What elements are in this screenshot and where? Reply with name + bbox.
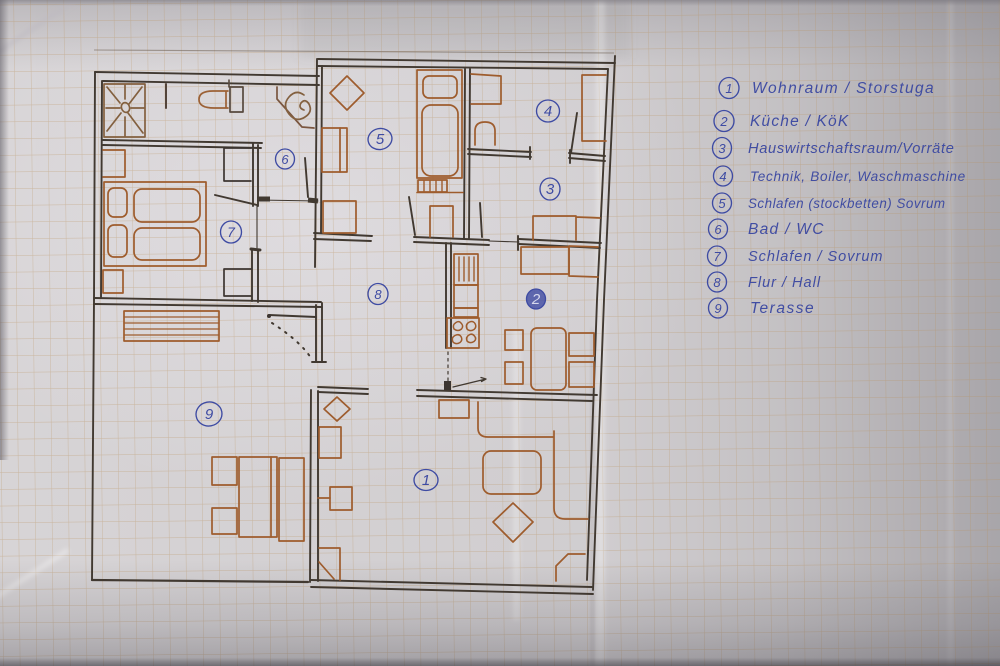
svg-text:Hauswirtschaftsraum/Vorräte: Hauswirtschaftsraum/Vorräte — [748, 141, 955, 157]
svg-text:7: 7 — [713, 249, 721, 264]
svg-text:8: 8 — [374, 287, 382, 302]
svg-text:Küche / KöK: Küche / KöK — [750, 113, 849, 130]
svg-text:4: 4 — [719, 169, 726, 184]
svg-text:Bad / WC: Bad / WC — [748, 221, 825, 238]
svg-text:2: 2 — [531, 291, 541, 308]
svg-text:Technik, Boiler, Waschmaschine: Technik, Boiler, Waschmaschine — [750, 169, 966, 184]
svg-text:Flur / Hall: Flur / Hall — [748, 275, 821, 291]
svg-text:4: 4 — [544, 103, 552, 120]
svg-text:5: 5 — [376, 131, 385, 148]
svg-text:Terasse: Terasse — [750, 300, 815, 317]
svg-text:Wohnraum / Storstuga: Wohnraum / Storstuga — [752, 80, 935, 97]
svg-text:7: 7 — [227, 224, 236, 240]
svg-text:8: 8 — [713, 275, 721, 290]
svg-text:3: 3 — [546, 181, 555, 198]
svg-text:5: 5 — [718, 196, 726, 211]
svg-text:9: 9 — [714, 301, 721, 316]
svg-text:6: 6 — [281, 152, 289, 167]
svg-text:Schlafen (stockbetten) Sovrum: Schlafen (stockbetten) Sovrum — [748, 196, 946, 211]
svg-text:Schlafen / Sovrum: Schlafen / Sovrum — [748, 249, 883, 265]
svg-text:2: 2 — [719, 114, 728, 129]
svg-text:6: 6 — [714, 222, 722, 237]
svg-text:3: 3 — [718, 141, 726, 156]
svg-text:1: 1 — [422, 472, 430, 489]
svg-text:9: 9 — [205, 406, 214, 423]
svg-text:1: 1 — [725, 81, 732, 96]
